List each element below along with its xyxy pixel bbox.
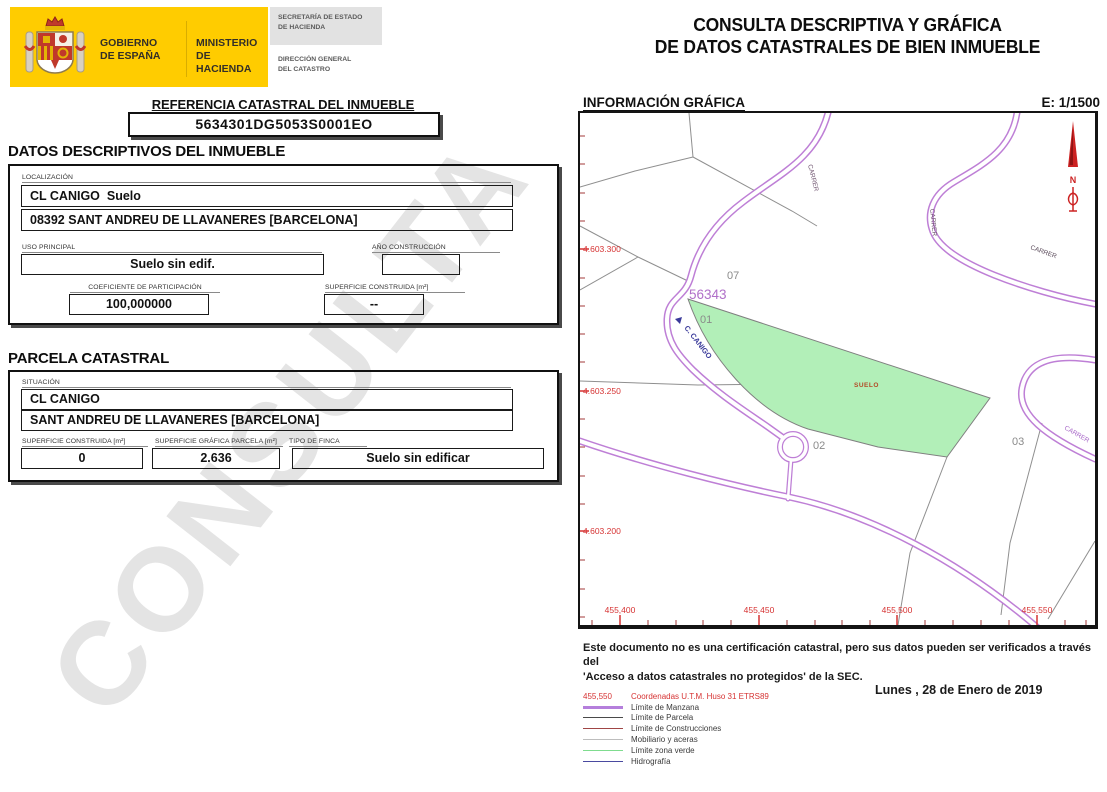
cadastral-document-page: CONSULTA bbox=[0, 0, 1107, 792]
legend-row: Límite de Parcela bbox=[583, 713, 863, 724]
datos-descriptivos-box: LOCALIZACIÓN CL CANIGO Suelo 08392 SANT … bbox=[8, 164, 559, 325]
superficie-grafica-label: SUPERFICIE GRÁFICA PARCELA [m²] bbox=[155, 438, 283, 447]
north-label: N bbox=[1070, 175, 1077, 185]
legend-label: Límite zona verde bbox=[631, 746, 695, 755]
legend-label: Límite de Construcciones bbox=[631, 724, 721, 733]
situacion-line2: SANT ANDREU DE LLAVANERES [BARCELONA] bbox=[21, 410, 513, 431]
superficie-construida-value: -- bbox=[324, 294, 424, 315]
localizacion-label: LOCALIZACIÓN bbox=[22, 174, 511, 183]
legend-line-swatch bbox=[583, 717, 623, 718]
legend-coordinate-prefix: 455,550 bbox=[583, 692, 623, 701]
coeficiente-value: 100,000000 bbox=[69, 294, 209, 315]
legend-row: Límite de Manzana bbox=[583, 702, 863, 713]
ano-construccion-label: AÑO CONSTRUCCIÓN bbox=[372, 244, 500, 253]
superficie-construida-label: SUPERFICIE CONSTRUIDA [m²] bbox=[325, 284, 465, 293]
secretaria-de-estado-label: SECRETARÍA DE ESTADO DE HACIENDA bbox=[270, 7, 382, 45]
document-title: CONSULTA DESCRIPTIVA Y GRÁFICA DE DATOS … bbox=[603, 15, 1093, 58]
parcel-07-label: 07 bbox=[727, 270, 739, 282]
parcela-catastral-heading: PARCELA CATASTRAL bbox=[8, 350, 169, 367]
gobierno-label: GOBIERNO DE ESPAÑA bbox=[100, 37, 160, 63]
situacion-line1: CL CANIGO bbox=[21, 389, 513, 410]
legend-line-swatch bbox=[583, 706, 623, 709]
legend-label: Mobiliario y aceras bbox=[631, 735, 698, 744]
y-tick-label: 4.603.300 bbox=[583, 244, 621, 254]
parcela-catastral-box: SITUACIÓN CL CANIGO SANT ANDREU DE LLAVA… bbox=[8, 370, 559, 482]
x-tick-label: 455,500 bbox=[882, 605, 913, 615]
parcel-01-label: 01 bbox=[700, 314, 712, 326]
coeficiente-label: COEFICIENTE DE PARTICIPACIÓN bbox=[70, 284, 220, 293]
x-tick-label: 455,400 bbox=[605, 605, 636, 615]
uso-principal-value: Suelo sin edif. bbox=[21, 254, 324, 275]
tipo-de-finca-value: Suelo sin edificar bbox=[292, 448, 544, 469]
legend-label: Hidrografía bbox=[631, 757, 671, 766]
legend-row: Hidrografía bbox=[583, 756, 863, 767]
referencia-catastral-heading: REFERENCIA CATASTRAL DEL INMUEBLE bbox=[60, 97, 506, 112]
legend-line-swatch bbox=[583, 761, 623, 762]
referencia-catastral-value: 5634301DG5053S0001EO bbox=[128, 112, 440, 137]
manzana-number-label: 56343 bbox=[689, 287, 727, 302]
localizacion-line2: 08392 SANT ANDREU DE LLAVANERES [BARCELO… bbox=[21, 209, 513, 231]
legend: 455,550Coordenadas U.T.M. Huso 31 ETRS89… bbox=[583, 691, 863, 767]
spain-coat-of-arms-icon bbox=[24, 16, 86, 80]
legend-label: Límite de Parcela bbox=[631, 713, 693, 722]
localizacion-line1: CL CANIGO Suelo bbox=[21, 185, 513, 207]
ano-construccion-value bbox=[382, 254, 460, 275]
y-tick-label: 4.603.250 bbox=[583, 386, 621, 396]
direccion-general-label: DIRECCIÓN GENERAL DEL CATASTRO bbox=[270, 55, 382, 85]
parcel-03-label: 03 bbox=[1012, 436, 1024, 448]
disclaimer-text: Este documento no es una certificación c… bbox=[583, 641, 1107, 684]
cadastral-map: 07 01 02 03 56343 SUELO CARRER CARRER CA… bbox=[578, 111, 1098, 629]
legend-line-swatch bbox=[583, 739, 623, 740]
legend-line-swatch bbox=[583, 750, 623, 751]
legend-label: Límite de Manzana bbox=[631, 703, 699, 712]
x-tick-label: 455,550 bbox=[1022, 605, 1053, 615]
map-scale: E: 1/1500 bbox=[1020, 95, 1100, 110]
ministerio-label: MINISTERIO DE HACIENDA bbox=[196, 37, 268, 76]
x-tick-label: 455,450 bbox=[744, 605, 775, 615]
y-tick-label: 4.603.200 bbox=[583, 526, 621, 536]
parcela-superficie-construida-label: SUPERFICIE CONSTRUIDA [m²] bbox=[22, 438, 148, 447]
legend-row: 455,550Coordenadas U.T.M. Huso 31 ETRS89 bbox=[583, 691, 863, 702]
legend-row: Límite zona verde bbox=[583, 745, 863, 756]
datos-descriptivos-heading: DATOS DESCRIPTIVOS DEL INMUEBLE bbox=[8, 143, 285, 160]
uso-principal-label: USO PRINCIPAL bbox=[22, 244, 322, 253]
parcela-superficie-construida-value: 0 bbox=[21, 448, 143, 469]
legend-row: Límite de Construcciones bbox=[583, 723, 863, 734]
document-date: Lunes , 28 de Enero de 2019 bbox=[875, 683, 1105, 697]
legend-label: Coordenadas U.T.M. Huso 31 ETRS89 bbox=[631, 692, 769, 701]
parcel-02-label: 02 bbox=[813, 440, 825, 452]
situacion-label: SITUACIÓN bbox=[22, 379, 511, 388]
legend-line-swatch bbox=[583, 728, 623, 729]
superficie-grafica-value: 2.636 bbox=[152, 448, 280, 469]
government-logo-block: GOBIERNO DE ESPAÑA MINISTERIO DE HACIEND… bbox=[10, 7, 268, 87]
tipo-de-finca-label: TIPO DE FINCA bbox=[289, 438, 367, 447]
legend-row: Mobiliario y aceras bbox=[583, 734, 863, 745]
informacion-grafica-heading: INFORMACIÓN GRÁFICA bbox=[583, 95, 745, 111]
logo-divider bbox=[186, 21, 187, 77]
suelo-label: SUELO bbox=[854, 382, 879, 389]
